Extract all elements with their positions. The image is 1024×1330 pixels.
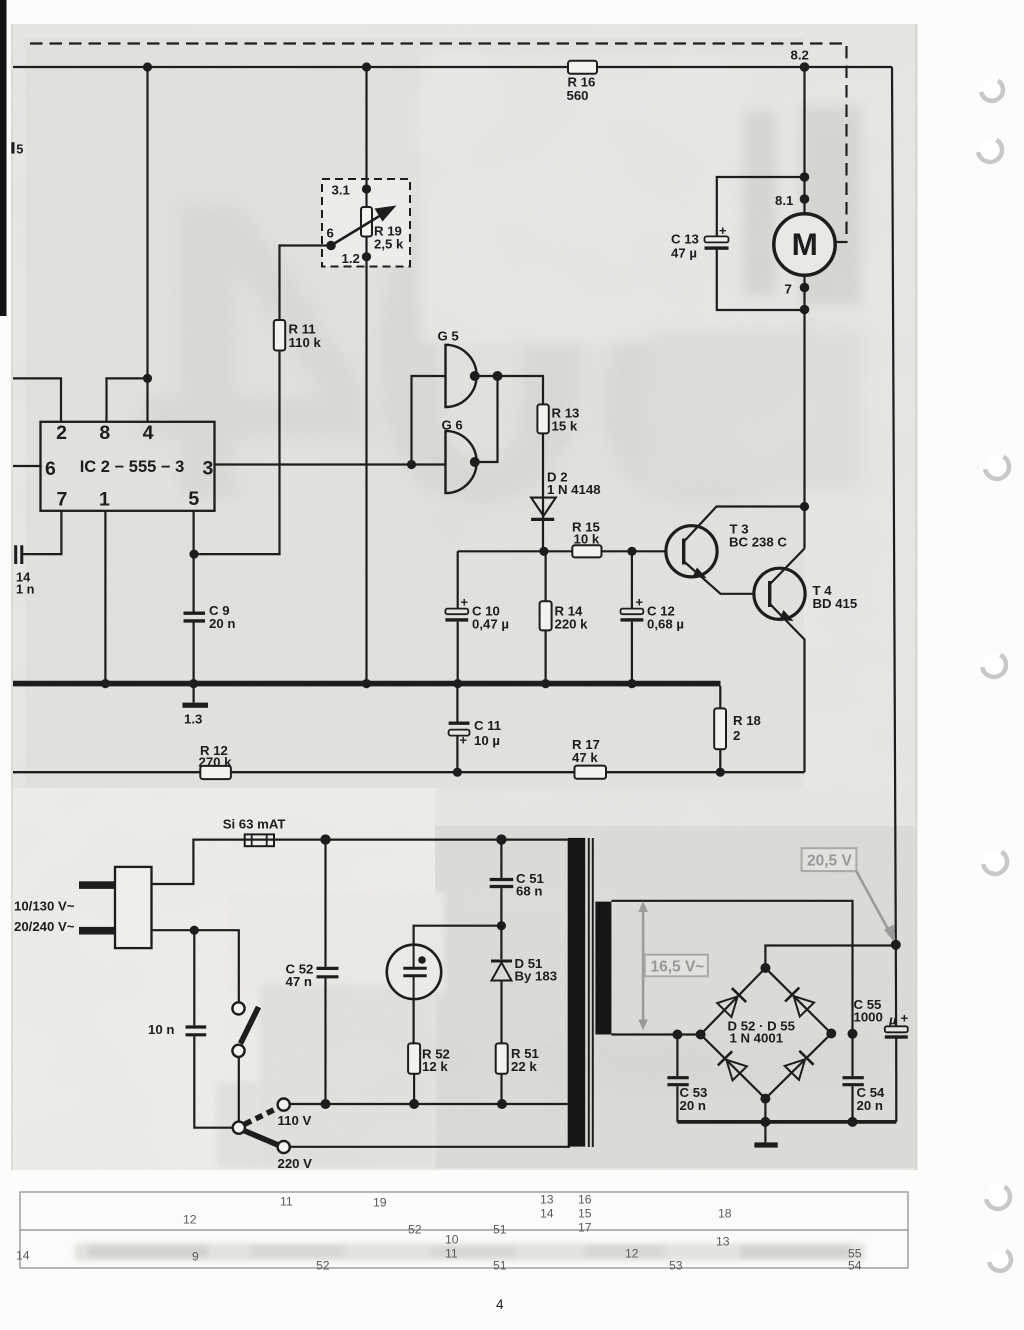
svg-text:270 k: 270 k bbox=[199, 755, 233, 770]
svg-text:1.2: 1.2 bbox=[342, 251, 360, 266]
svg-text:2,5 k: 2,5 k bbox=[374, 237, 404, 252]
svg-text:2: 2 bbox=[56, 422, 67, 444]
svg-text:+: + bbox=[901, 1011, 909, 1026]
svg-text:51: 51 bbox=[493, 1223, 507, 1237]
svg-text:12: 12 bbox=[183, 1213, 197, 1227]
svg-text:µ: µ bbox=[888, 1013, 897, 1028]
svg-text:53: 53 bbox=[669, 1259, 683, 1273]
svg-text:110 k: 110 k bbox=[289, 335, 322, 350]
svg-text:110 V: 110 V bbox=[278, 1113, 312, 1128]
svg-text:52: 52 bbox=[316, 1259, 330, 1273]
svg-text:13: 13 bbox=[540, 1193, 554, 1207]
svg-text:16: 16 bbox=[578, 1193, 592, 1207]
svg-text:10/130 V~: 10/130 V~ bbox=[14, 899, 75, 914]
svg-text:10: 10 bbox=[445, 1233, 459, 1247]
svg-text:BC 238 C: BC 238 C bbox=[729, 535, 787, 550]
svg-text:20/240 V~: 20/240 V~ bbox=[14, 919, 75, 934]
svg-text:IC 2 − 555 − 3: IC 2 − 555 − 3 bbox=[80, 458, 185, 476]
svg-text:+: + bbox=[719, 223, 726, 238]
svg-text:220 k: 220 k bbox=[555, 617, 589, 632]
svg-text:0,68 µ: 0,68 µ bbox=[647, 617, 684, 632]
svg-text:1 N 4148: 1 N 4148 bbox=[547, 482, 601, 497]
svg-text:11: 11 bbox=[445, 1247, 458, 1261]
svg-text:47 µ: 47 µ bbox=[671, 246, 697, 261]
svg-text:1: 1 bbox=[99, 489, 110, 511]
svg-text:G 5: G 5 bbox=[438, 329, 459, 344]
svg-text:G 6: G 6 bbox=[442, 418, 463, 433]
svg-text:17: 17 bbox=[578, 1221, 592, 1235]
svg-text:15 k: 15 k bbox=[552, 419, 578, 434]
svg-text:5: 5 bbox=[188, 488, 199, 510]
svg-text:20 n: 20 n bbox=[209, 616, 235, 631]
svg-text:1 n: 1 n bbox=[16, 582, 35, 597]
svg-text:14: 14 bbox=[540, 1207, 554, 1221]
svg-text:47 k: 47 k bbox=[572, 750, 598, 765]
svg-text:R 18: R 18 bbox=[733, 713, 761, 728]
svg-text:20,5 V: 20,5 V bbox=[807, 853, 852, 870]
svg-text:8: 8 bbox=[99, 422, 110, 444]
svg-text:52: 52 bbox=[408, 1223, 422, 1237]
svg-text:+: + bbox=[460, 733, 467, 748]
svg-text:22 k: 22 k bbox=[511, 1059, 537, 1074]
svg-text:6: 6 bbox=[45, 458, 56, 480]
svg-text:8.2: 8.2 bbox=[791, 48, 809, 63]
svg-text:1 N 4001: 1 N 4001 bbox=[730, 1031, 784, 1046]
svg-text:12 k: 12 k bbox=[422, 1059, 448, 1074]
svg-text:10 k: 10 k bbox=[574, 532, 600, 547]
svg-text:3: 3 bbox=[202, 458, 213, 480]
svg-text:10 µ: 10 µ bbox=[474, 733, 500, 748]
svg-text:8.1: 8.1 bbox=[775, 193, 793, 208]
svg-text:68 n: 68 n bbox=[516, 884, 542, 899]
svg-text:12: 12 bbox=[625, 1247, 639, 1261]
svg-text:4: 4 bbox=[496, 1297, 504, 1312]
svg-text:54: 54 bbox=[848, 1259, 862, 1273]
svg-text:M: M bbox=[792, 226, 818, 262]
svg-text:5: 5 bbox=[16, 142, 23, 157]
svg-text:By 183: By 183 bbox=[515, 969, 558, 984]
svg-text:560: 560 bbox=[567, 88, 589, 103]
svg-text:+: + bbox=[636, 595, 643, 610]
svg-text:2: 2 bbox=[733, 728, 740, 743]
svg-text:7: 7 bbox=[785, 282, 792, 297]
svg-text:20 n: 20 n bbox=[680, 1098, 706, 1113]
svg-text:4: 4 bbox=[143, 422, 154, 444]
svg-text:C 13: C 13 bbox=[671, 232, 699, 247]
svg-text:6: 6 bbox=[327, 226, 334, 241]
svg-text:1000: 1000 bbox=[854, 1010, 883, 1025]
svg-text:16,5 V~: 16,5 V~ bbox=[651, 959, 705, 976]
svg-text:0,47 µ: 0,47 µ bbox=[472, 617, 509, 632]
svg-text:7: 7 bbox=[56, 489, 67, 511]
svg-text:13: 13 bbox=[716, 1235, 730, 1249]
svg-text:11: 11 bbox=[280, 1195, 293, 1209]
svg-text:47 n: 47 n bbox=[286, 974, 312, 989]
svg-text:51: 51 bbox=[493, 1259, 507, 1273]
svg-text:14: 14 bbox=[16, 1249, 30, 1263]
svg-text:Si 63 mAT: Si 63 mAT bbox=[223, 817, 286, 832]
svg-text:19: 19 bbox=[373, 1196, 387, 1210]
svg-text:1.3: 1.3 bbox=[184, 712, 202, 727]
svg-text:BD 415: BD 415 bbox=[813, 596, 858, 611]
svg-text:220 V: 220 V bbox=[278, 1156, 313, 1171]
svg-text:+: + bbox=[461, 595, 468, 610]
svg-text:10 n: 10 n bbox=[148, 1022, 174, 1037]
svg-text:20 n: 20 n bbox=[857, 1098, 883, 1113]
svg-text:15: 15 bbox=[578, 1207, 592, 1221]
svg-text:9: 9 bbox=[192, 1250, 199, 1264]
svg-text:3.1: 3.1 bbox=[332, 183, 350, 198]
svg-text:18: 18 bbox=[718, 1207, 732, 1221]
svg-text:C 11: C 11 bbox=[474, 718, 501, 733]
